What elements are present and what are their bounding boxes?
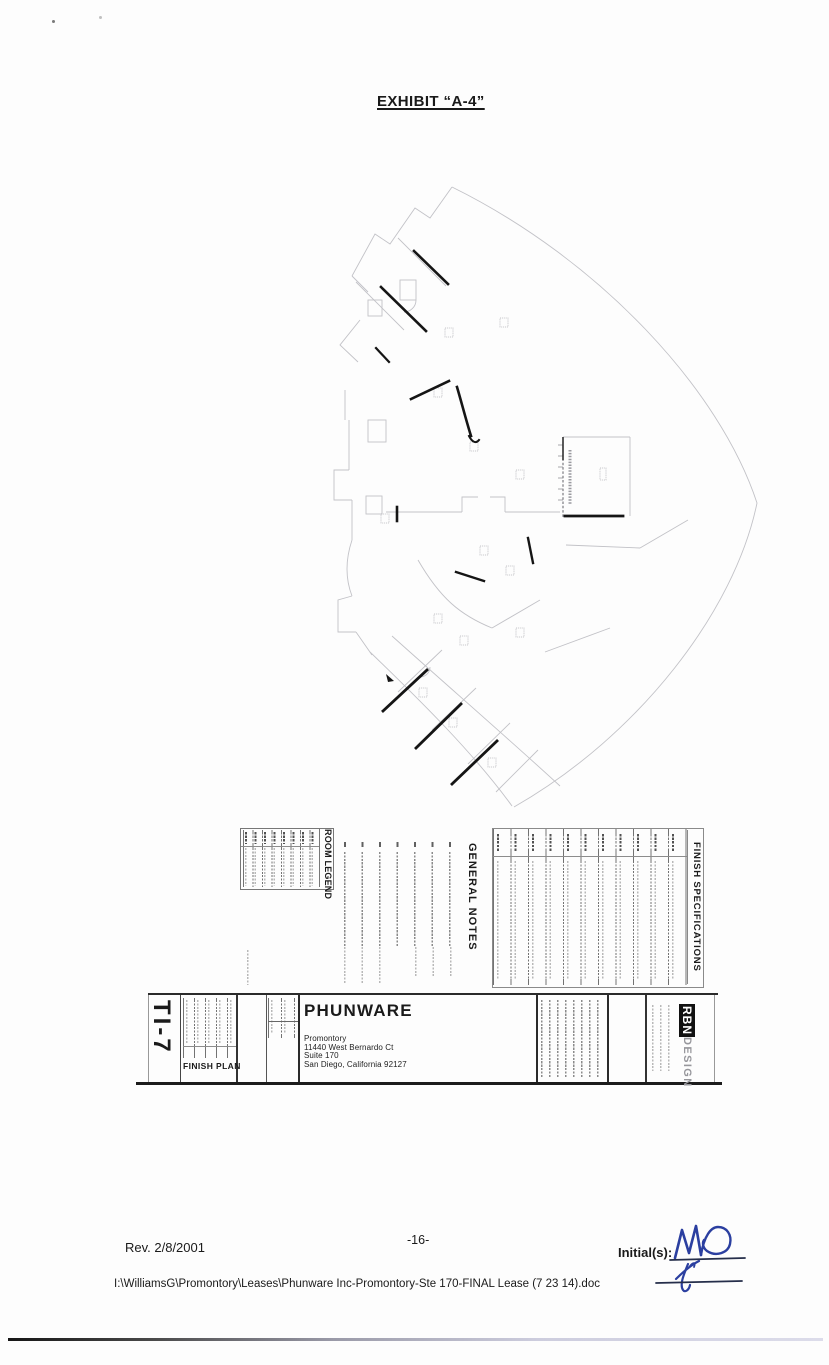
room-legend-title: ROOM LEGEND: [319, 829, 333, 887]
general-notes-overflow: [247, 950, 255, 985]
titleblock-divider: [266, 995, 267, 1082]
finish-specifications-title: FINISH SPECIFICATIONS: [687, 830, 702, 984]
sheet-name: FINISH PLAN: [183, 1061, 241, 1071]
document-path: I:\WilliamsG\Promontory\Leases\Phunware …: [114, 1278, 600, 1290]
scan-speck: [99, 16, 102, 19]
titleblock-top-border: [148, 993, 718, 995]
titleblock-divider: [645, 995, 647, 1082]
general-notes-title: GENERAL NOTES: [466, 843, 478, 955]
general-notes-text: [344, 947, 392, 983]
project-info-line: [268, 1021, 298, 1022]
floor-plan-drawing: [320, 170, 780, 830]
room-number-tags: [381, 318, 606, 767]
firm-contact-text: [652, 1005, 676, 1071]
room-legend-numbers: [245, 832, 318, 844]
finish-specs-codes: [497, 834, 685, 851]
titleblock-divider: [298, 995, 300, 1082]
firm-logo-rbn: RBN: [679, 1004, 695, 1037]
scan-speck: [52, 20, 55, 23]
titleblock-divider: [180, 995, 181, 1082]
finish-specs-descriptions: [497, 861, 685, 979]
finish-specs-divider: [493, 856, 687, 857]
scanned-document-page: EXHIBIT “A-4”: [0, 0, 829, 1365]
project-info-text: [271, 1000, 297, 1034]
sheet-info-text: [186, 1000, 234, 1044]
scan-artifact-line: [8, 1338, 823, 1341]
titleblock-divider: [536, 995, 538, 1082]
titleblock-bottom-border: [136, 1082, 722, 1085]
handwritten-initials: [640, 1195, 760, 1300]
client-name: PHUNWARE: [304, 1001, 413, 1021]
firm-logo: RBNDESIGN: [678, 1004, 696, 1074]
wall-annotation: [558, 437, 570, 518]
room-legend-block: ROOM LEGEND: [240, 828, 334, 890]
exhibit-title: EXHIBIT “A-4”: [377, 93, 485, 110]
sheet-number: TI-7: [147, 1000, 175, 1064]
firm-logo-design: DESIGN: [681, 1037, 693, 1088]
new-walls: [376, 251, 623, 784]
address-line: San Diego, California 92127: [304, 1061, 407, 1070]
titleblock-divider: [607, 995, 609, 1082]
finish-specifications-block: FINISH SPECIFICATIONS: [492, 828, 704, 988]
room-legend-names: [245, 848, 318, 886]
sheet-info-line: [183, 1046, 236, 1047]
revision-notes-text: [541, 1000, 605, 1078]
existing-walls: [334, 187, 757, 807]
client-address: Promontory 11440 West Bernardo Ct Suite …: [304, 1035, 407, 1069]
room-legend-divider: [241, 846, 319, 847]
general-notes-numbers: [344, 842, 462, 847]
revision-date: Rev. 2/8/2001: [125, 1240, 205, 1255]
general-notes-block: GENERAL NOTES: [338, 828, 488, 988]
general-notes-text: [344, 852, 462, 947]
general-notes-text: [415, 947, 462, 977]
titleblock-divider: [714, 995, 715, 1082]
page-number: -16-: [407, 1233, 429, 1247]
